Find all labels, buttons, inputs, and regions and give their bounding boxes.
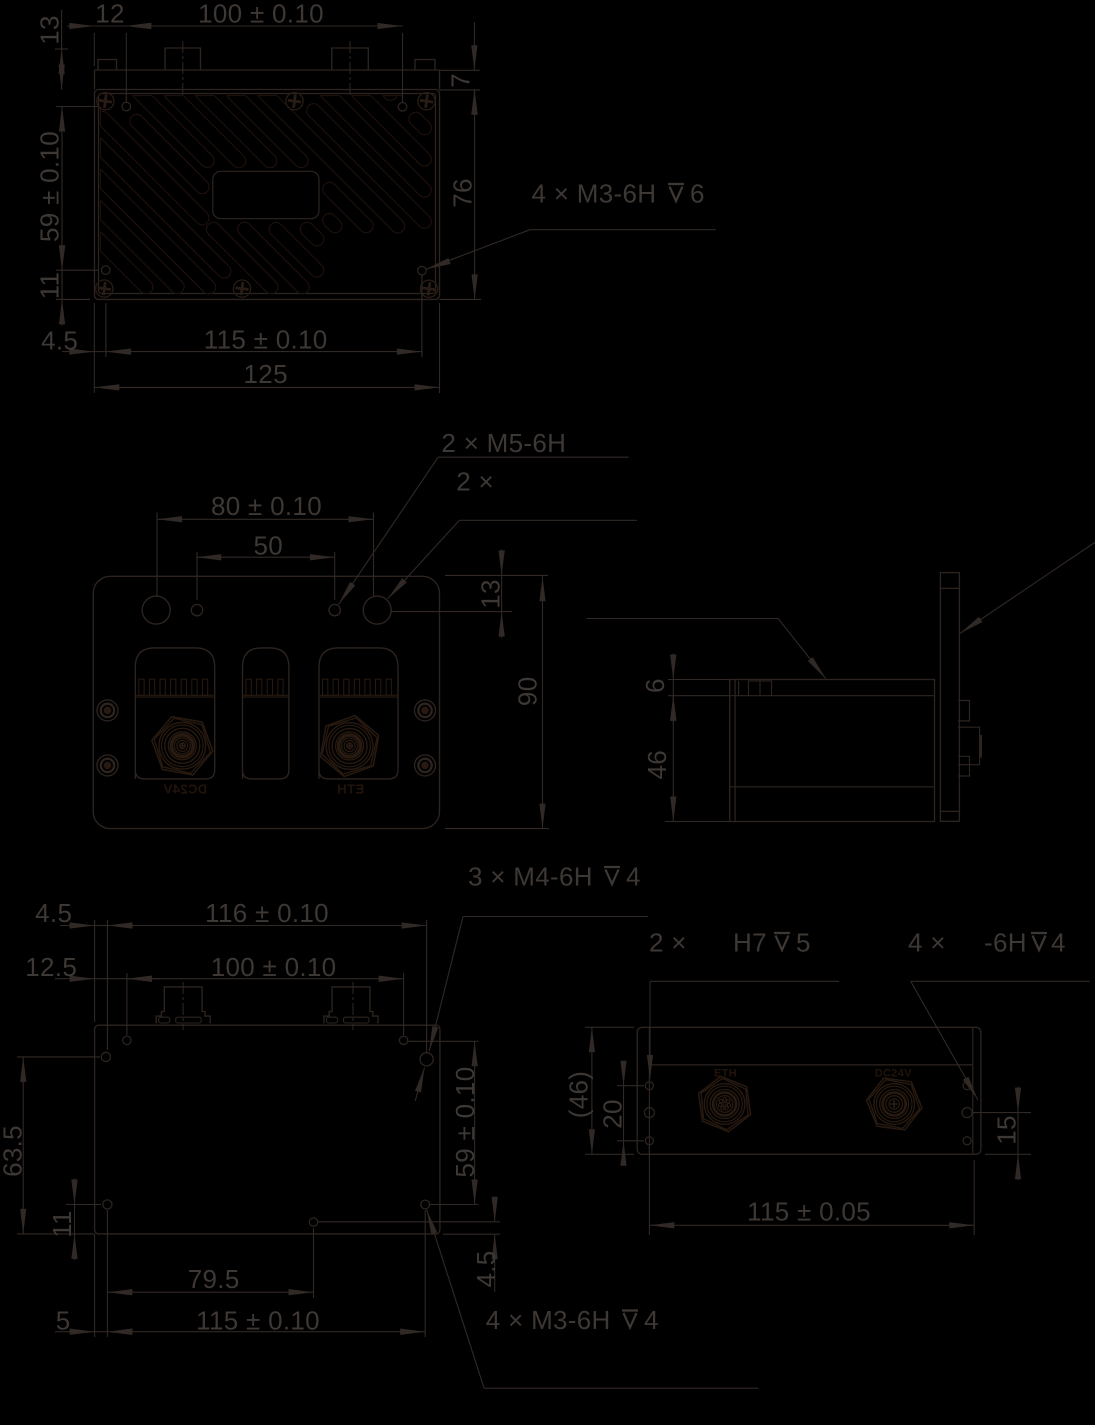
- svg-text:90: 90: [513, 677, 543, 707]
- svg-text:(46): (46): [564, 1071, 594, 1118]
- svg-text:80 ± 0.10: 80 ± 0.10: [211, 491, 322, 521]
- svg-text:-6H: -6H: [984, 928, 1027, 958]
- svg-text:DC24V: DC24V: [875, 1068, 912, 1080]
- svg-text:11: 11: [35, 272, 65, 300]
- svg-text:59 ± 0.10: 59 ± 0.10: [35, 131, 65, 242]
- svg-text:11: 11: [47, 1210, 77, 1238]
- svg-text:ETH: ETH: [714, 1068, 737, 1080]
- svg-text:115 ± 0.10: 115 ± 0.10: [196, 1306, 320, 1336]
- svg-text:2 ×: 2 ×: [649, 928, 687, 958]
- svg-text:125: 125: [244, 359, 288, 389]
- svg-text:115 ± 0.10: 115 ± 0.10: [204, 325, 328, 355]
- svg-text:4 × M3-6H: 4 × M3-6H: [532, 179, 657, 209]
- svg-text:H7: H7: [733, 928, 767, 958]
- svg-text:12.5: 12.5: [25, 952, 77, 982]
- svg-text:13: 13: [35, 15, 65, 45]
- svg-text:4: 4: [626, 862, 641, 892]
- svg-text:15: 15: [992, 1115, 1022, 1145]
- svg-text:4.5: 4.5: [41, 326, 78, 356]
- svg-text:20: 20: [598, 1099, 628, 1129]
- svg-text:2 ×: 2 ×: [456, 467, 494, 497]
- svg-text:12: 12: [95, 0, 125, 29]
- svg-text:2 × M5-6H: 2 × M5-6H: [441, 428, 566, 458]
- svg-text:100 ± 0.10: 100 ± 0.10: [211, 952, 337, 982]
- svg-text:6: 6: [690, 179, 705, 209]
- svg-text:13: 13: [476, 579, 506, 609]
- svg-text:3 × M4-6H: 3 × M4-6H: [468, 862, 593, 892]
- svg-text:76: 76: [448, 178, 478, 208]
- svg-text:ETH: ETH: [337, 782, 364, 797]
- svg-text:4.5: 4.5: [35, 898, 72, 928]
- svg-text:5: 5: [56, 1306, 71, 1336]
- svg-text:DC24V: DC24V: [163, 782, 207, 797]
- svg-text:46: 46: [642, 750, 672, 780]
- svg-text:115 ± 0.05: 115 ± 0.05: [747, 1197, 871, 1227]
- svg-text:63.5: 63.5: [0, 1125, 28, 1177]
- svg-text:116 ± 0.10: 116 ± 0.10: [205, 898, 329, 928]
- svg-text:5: 5: [796, 928, 811, 958]
- svg-text:4 ×: 4 ×: [908, 928, 946, 958]
- svg-text:79.5: 79.5: [188, 1264, 240, 1294]
- svg-text:100 ± 0.10: 100 ± 0.10: [198, 0, 324, 29]
- svg-text:4: 4: [1051, 928, 1066, 958]
- svg-text:50: 50: [254, 531, 284, 561]
- svg-text:4 × M3-6H: 4 × M3-6H: [486, 1305, 611, 1335]
- svg-text:7: 7: [446, 73, 476, 88]
- svg-text:6: 6: [640, 678, 670, 693]
- svg-text:59 ± 0.10: 59 ± 0.10: [450, 1067, 480, 1178]
- svg-text:4: 4: [644, 1305, 659, 1335]
- svg-text:4.5: 4.5: [471, 1250, 501, 1287]
